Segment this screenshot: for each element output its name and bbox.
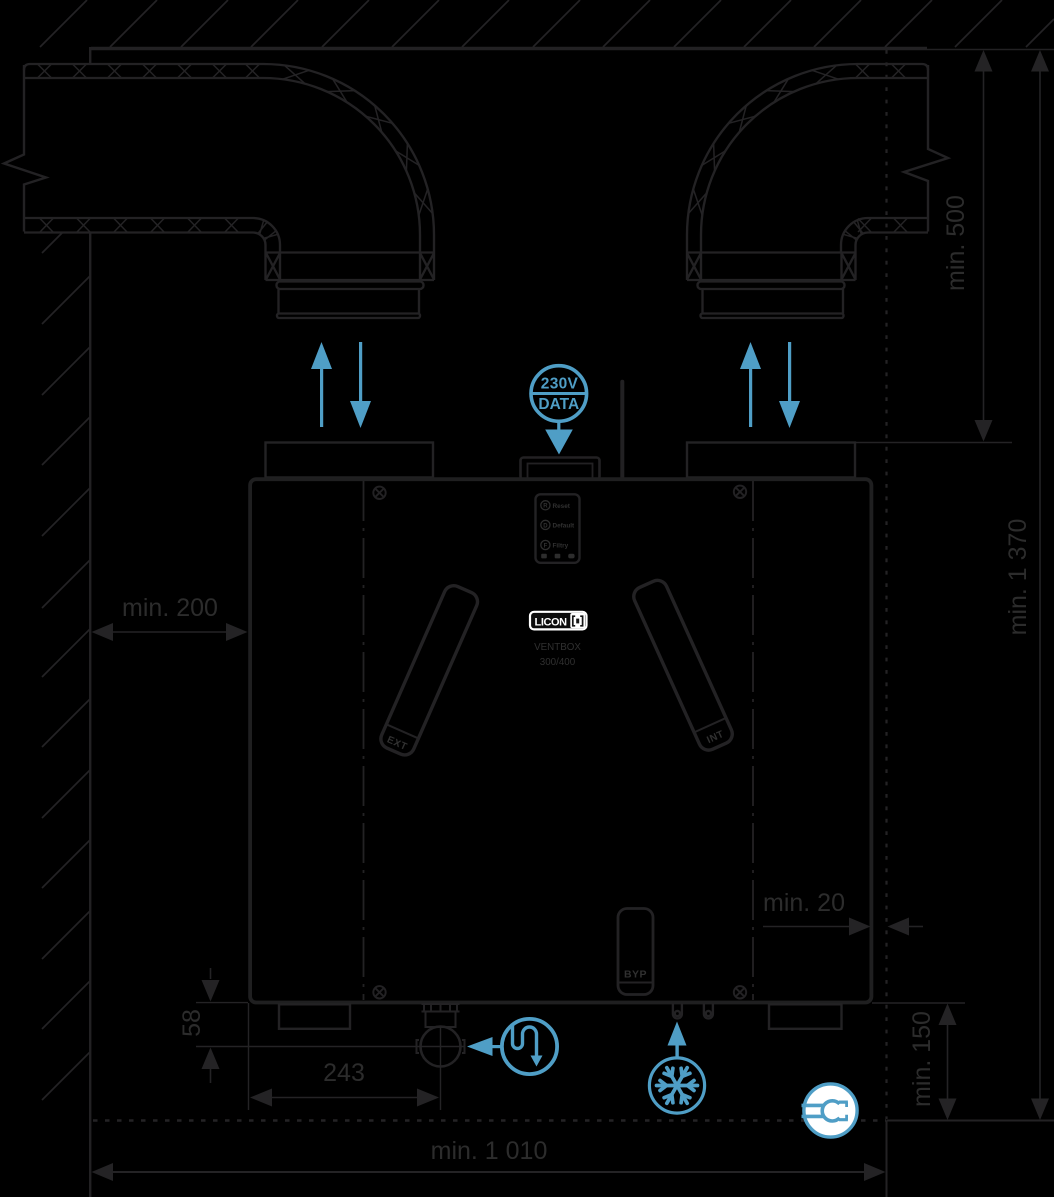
svg-text:R: R bbox=[543, 504, 548, 510]
svg-text:VENTBOX: VENTBOX bbox=[534, 642, 581, 653]
svg-text:BYP: BYP bbox=[624, 969, 647, 981]
svg-text:min. 1 370: min. 1 370 bbox=[1004, 519, 1032, 636]
svg-text:min. 20: min. 20 bbox=[763, 889, 845, 917]
svg-text:D: D bbox=[543, 523, 548, 529]
svg-text:243: 243 bbox=[323, 1059, 365, 1087]
svg-text:F: F bbox=[544, 543, 548, 549]
svg-text:min. 500: min. 500 bbox=[942, 195, 970, 291]
svg-text:Default: Default bbox=[553, 522, 576, 529]
svg-text:LICON: LICON bbox=[535, 617, 568, 629]
svg-text:min. 150: min. 150 bbox=[908, 1011, 936, 1107]
svg-text:min. 1 010: min. 1 010 bbox=[431, 1137, 548, 1165]
svg-text:DATA: DATA bbox=[538, 396, 579, 413]
svg-text:min. 200: min. 200 bbox=[122, 594, 218, 622]
svg-text:58: 58 bbox=[178, 1009, 206, 1037]
svg-text:300/400: 300/400 bbox=[540, 657, 576, 668]
svg-text:Filtry: Filtry bbox=[553, 543, 569, 550]
svg-text:230V: 230V bbox=[541, 376, 579, 393]
svg-text:Reset: Reset bbox=[553, 503, 571, 510]
